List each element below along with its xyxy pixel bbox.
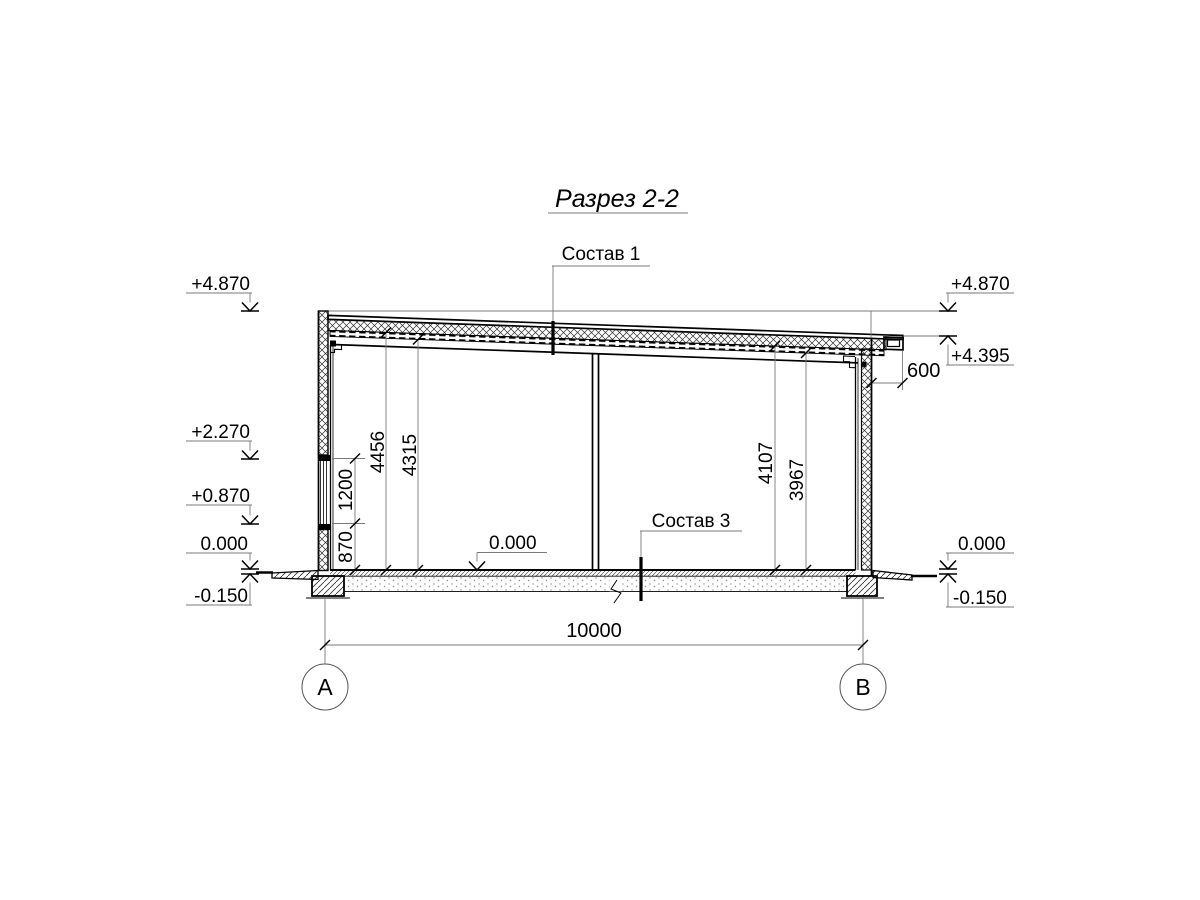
dim-3967: 3967 [787,459,808,501]
axis-bubble-b: В [840,664,886,710]
elev-label: +4.395 [951,346,1010,367]
paper [0,0,1200,900]
axis-label-b: В [855,674,870,700]
elev-label: -0.150 [194,586,248,607]
floor-screed [330,571,856,576]
drawing-title: Разрез 2-2 [555,185,679,213]
dim-870: 870 [336,531,357,563]
elev-label: 0.000 [489,533,537,554]
window-lintel [318,455,331,461]
left-wall-lower [319,530,329,571]
left-wall-upper [319,311,329,455]
dim-4107: 4107 [756,442,777,484]
dim-10000: 10000 [566,620,622,642]
right-foundation [847,576,877,596]
drawing-sheet: Разрез 2-2 [0,0,1200,900]
axis-bubble-a: А [302,664,348,710]
elev-label: +4.870 [951,274,1010,295]
axis-label-a: А [317,674,333,700]
left-wall [318,311,333,571]
dim-4315: 4315 [400,434,421,476]
elev-label: +4.870 [191,274,250,295]
elev-label: +0.870 [191,486,250,507]
dim-1200: 1200 [336,469,357,511]
composition-roof-label: Состав 1 [562,244,641,265]
elev-label: +2.270 [191,422,250,443]
roof-fascia-inner [888,340,900,347]
right-wall-body [862,349,872,570]
section-drawing: Разрез 2-2 [0,0,1200,900]
elev-label: -0.150 [953,588,1007,609]
dim-600: 600 [907,360,940,382]
elev-label: 0.000 [200,534,248,555]
composition-floor-label: Состав 3 [652,511,731,532]
right-wall [856,338,872,576]
title-block: Разрез 2-2 [548,185,688,213]
elev-label: 0.000 [958,534,1006,555]
dim-4456: 4456 [368,431,389,473]
floor-underlay [344,577,848,592]
window-sill [318,524,331,530]
